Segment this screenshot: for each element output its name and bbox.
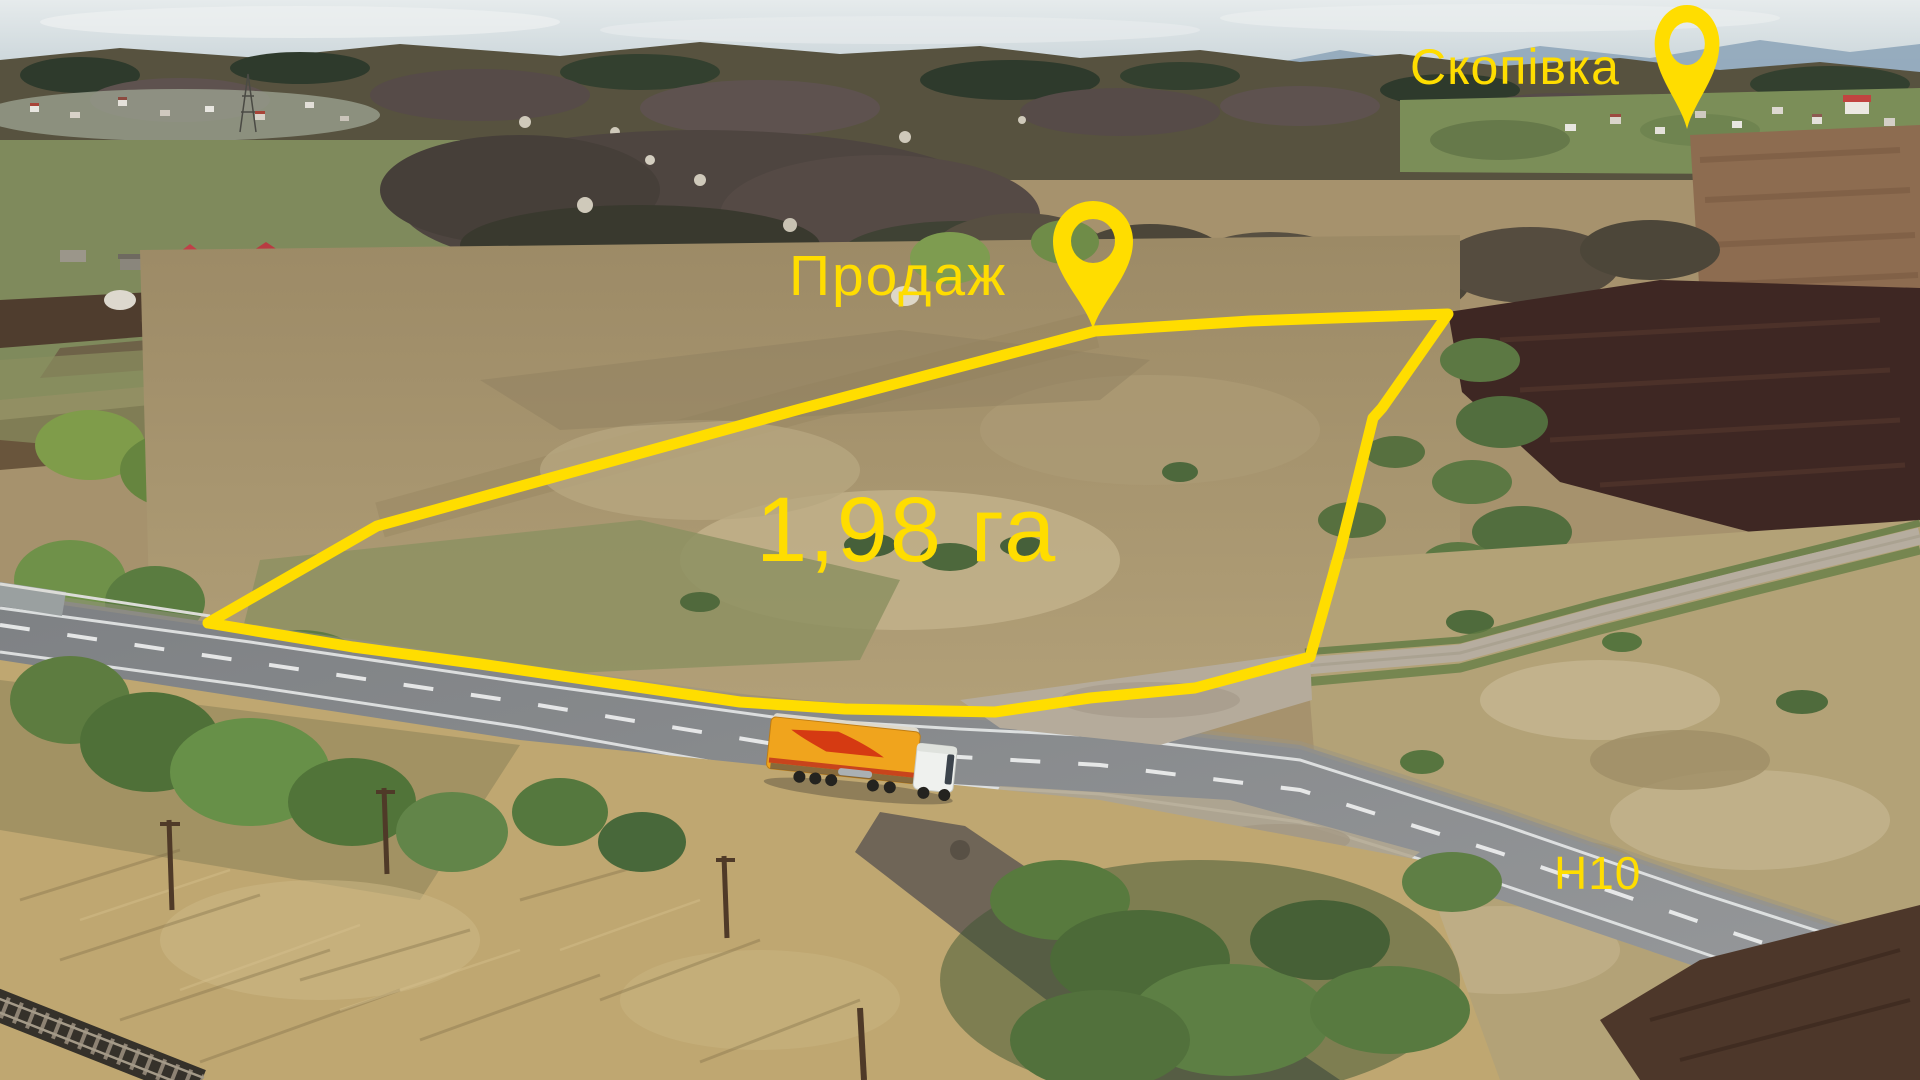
village-label: Скопівка [1410, 42, 1620, 92]
road-label: Н10 [1554, 850, 1641, 896]
aerial-photo: Скопівка Продаж 1,98 га Н10 [0, 0, 1920, 1080]
sale-label: Продаж [789, 248, 1007, 305]
area-label: 1,98 га [756, 484, 1057, 576]
